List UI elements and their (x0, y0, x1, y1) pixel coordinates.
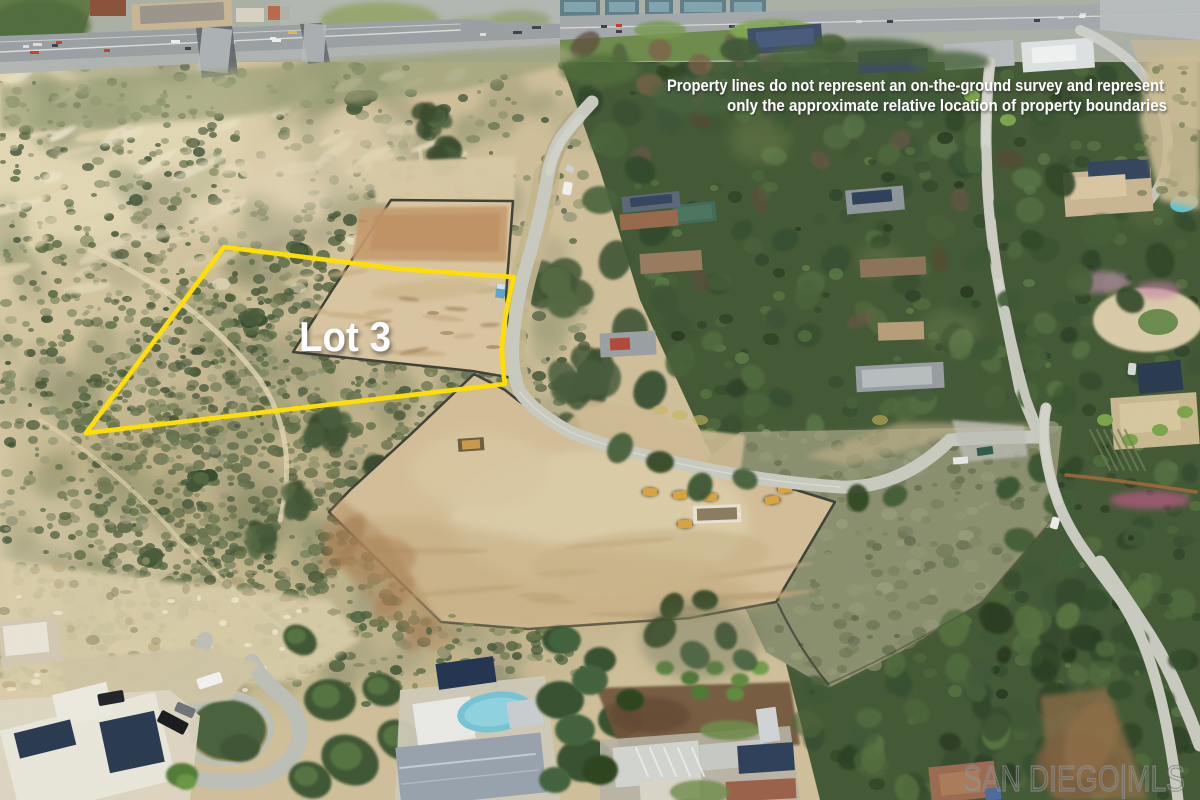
svg-text:SAN DIEGO|MLS: SAN DIEGO|MLS (963, 758, 1185, 799)
svg-text:Property lines do not represen: Property lines do not represent an on-th… (667, 77, 1164, 95)
svg-text:only the approximate relative: only the approximate relative location o… (727, 97, 1167, 115)
svg-text:Lot 3: Lot 3 (299, 313, 391, 360)
